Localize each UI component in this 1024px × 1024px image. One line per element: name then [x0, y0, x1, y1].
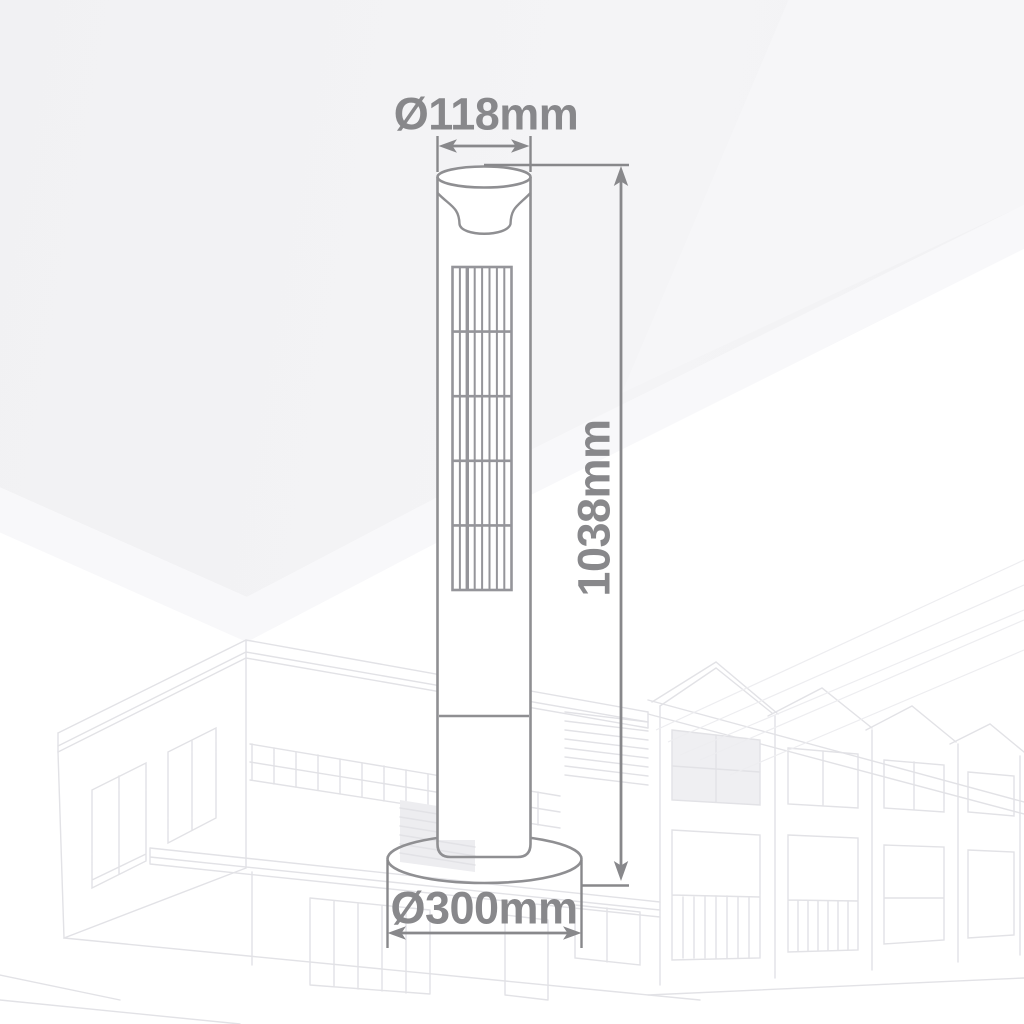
top-diameter-label: Ø118mm [394, 92, 579, 137]
base-diameter-label: Ø300mm [390, 886, 577, 931]
fan-base-ellipse [388, 835, 582, 883]
height-label: 1038mm [572, 419, 617, 596]
fan-dimension-diagram: Ø118mm 1038mm Ø300mm [0, 0, 1024, 1024]
tower-fan-drawing [0, 0, 1024, 1024]
